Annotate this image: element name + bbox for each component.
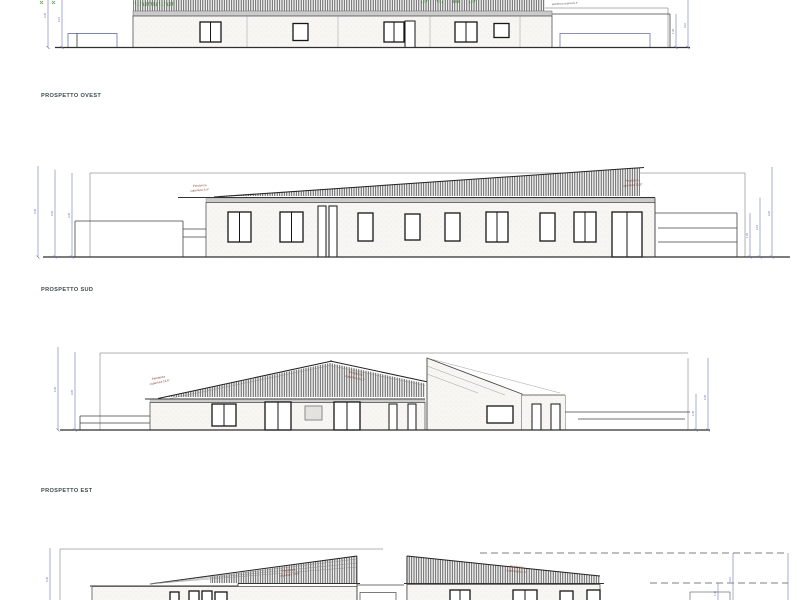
- elevation-label-est: PROSPETTO EST: [41, 488, 93, 494]
- elevation-label-sud: PROSPETTO SUD: [41, 287, 93, 293]
- gap-volume: [357, 556, 404, 600]
- elevation-sud: Pendenza copertura 3.4° Pendenza copertu…: [33, 166, 790, 293]
- svg-text:4.05: 4.05: [70, 389, 74, 395]
- roof-fascia: [206, 199, 655, 203]
- svg-text:4.45: 4.45: [45, 576, 49, 582]
- svg-text:1.40: 1.40: [713, 590, 717, 596]
- roof-fascia-left: [90, 584, 360, 587]
- windows-left: [170, 591, 227, 600]
- svg-text:4.45: 4.45: [703, 394, 707, 400]
- pergola-wall: [75, 221, 206, 257]
- elevation-north: Pendenza copertura 13.6° Pendenza copert…: [45, 548, 788, 600]
- svg-text:1.35: 1.35: [691, 410, 695, 416]
- svg-text:1.26: 1.26: [671, 28, 675, 34]
- pergola-wall: [68, 34, 117, 48]
- drawing-sheet: pendenza copertura 4° 3.45 3.15 1.26: [0, 0, 800, 600]
- elevation-label-west: PROSPETTO OVEST: [41, 93, 101, 99]
- roof-hatch-right: [330, 363, 425, 397]
- svg-text:4.45: 4.45: [33, 208, 37, 214]
- svg-text:3.45: 3.45: [43, 12, 47, 18]
- right-wing: [522, 395, 690, 430]
- svg-text:2.16: 2.16: [755, 224, 759, 230]
- roof-slope-note-left: Pendenza copertura 3.4°: [190, 183, 210, 193]
- pergola-wall: [80, 416, 150, 430]
- elevations-drawing: pendenza copertura 4° 3.45 3.15 1.26: [0, 0, 800, 600]
- svg-text:4.05: 4.05: [50, 210, 54, 216]
- svg-text:3.20: 3.20: [767, 210, 771, 216]
- svg-text:1.35: 1.35: [745, 232, 749, 238]
- elevation-west: pendenza copertura 4° 3.45 3.15 1.26: [40, 0, 690, 99]
- roof-hatch-right: [407, 556, 600, 583]
- side-wing: [655, 198, 737, 258]
- roof-fascia: [133, 11, 552, 16]
- roof-hatch: [133, 0, 545, 11]
- roof-slope-note-left: Pendenza copertura 13.6°: [148, 374, 171, 386]
- svg-text:copertura 3.4°: copertura 3.4°: [190, 187, 210, 192]
- roof-slope-note-right: Pendenza copertura 11.3°: [622, 178, 644, 188]
- elevation-est: Pendenza copertura 13.6° Pendenza copert…: [41, 347, 710, 494]
- roof-slope-note: pendenza copertura 4°: [551, 1, 578, 6]
- svg-text:copertura 11.3°: copertura 11.3°: [622, 182, 643, 187]
- svg-text:3.45: 3.45: [67, 212, 71, 218]
- side-wing: [552, 14, 670, 48]
- building-wall: [133, 16, 552, 48]
- svg-text:4.45: 4.45: [53, 386, 57, 392]
- cropped-plant-marks: [40, 1, 55, 4]
- svg-text:3.10: 3.10: [728, 576, 732, 582]
- svg-text:3.15: 3.15: [57, 16, 61, 22]
- low-wall-right: [690, 592, 730, 600]
- svg-text:3.10: 3.10: [683, 22, 687, 28]
